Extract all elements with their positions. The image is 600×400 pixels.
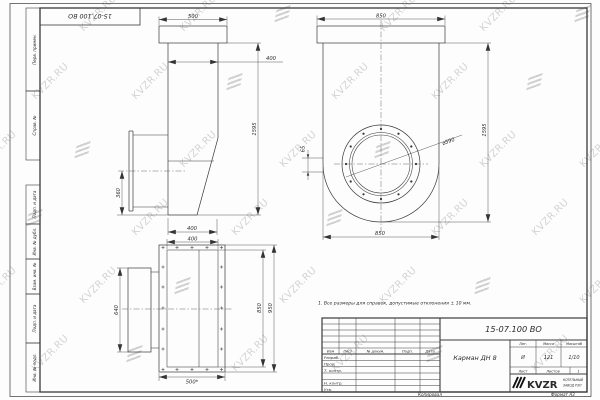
dim-outlet-height: 360 <box>116 187 122 198</box>
copied-label: Копировал <box>418 392 442 397</box>
row-prov: Пров. <box>324 361 335 366</box>
company-name-line1: КОТЕЛЬНЫЙ <box>563 377 584 382</box>
doc-number: 15-07.100 ВО <box>485 324 542 334</box>
flange-view <box>122 245 232 372</box>
corner-stamp-number: 15-07.100 ВО <box>68 12 112 19</box>
dim-outer-height: 950 <box>268 302 274 313</box>
row-nkontr: Н. контр. <box>324 381 343 386</box>
lit-label: Лит. <box>518 342 527 346</box>
col-izm: Изм <box>327 349 335 353</box>
row-tkontr: Т. контр. <box>324 368 342 373</box>
flange-view-dim-text: 400 500* 850 950 640 <box>114 237 274 386</box>
company-name-line2: ЗАВОД РЭП <box>563 384 582 388</box>
masshtab-label: Масштаб <box>566 342 582 346</box>
dim-flange-width: 850 <box>376 14 387 20</box>
company-logo: KVZR КОТЕЛЬНЫЙ ЗАВОД РЭП <box>513 377 584 391</box>
dim-offset: 65 <box>301 145 307 152</box>
side-view <box>118 26 227 215</box>
dim-flange-width: 500 <box>188 14 199 20</box>
col-podp: Подп. <box>402 349 413 353</box>
col-list: Лист <box>342 349 353 353</box>
dim-bottom-width: 400 <box>187 226 198 232</box>
dim-left-height: 640 <box>114 304 120 315</box>
side-view-dimensions <box>117 17 283 236</box>
format-label: Формат А3 <box>551 392 575 397</box>
massa-value: 121 <box>544 355 554 361</box>
drawing-note: 1. Все размеры для справок, допустимые о… <box>318 301 471 307</box>
col-docnum: № докум. <box>366 349 385 353</box>
sheets-label: Листов <box>545 369 559 373</box>
margin-label: Перв. примен. <box>32 34 37 65</box>
sheets-value: 1 <box>577 369 579 373</box>
col-data: Дата <box>424 349 434 353</box>
dim-diameter: ⌀590 <box>442 137 457 147</box>
margin-label: Подп. и дата <box>32 304 37 332</box>
engineering-drawing: Перв. примен. Справ. № Подп. и дата Инв.… <box>0 0 600 400</box>
lit-value: И <box>521 355 525 361</box>
masshtab-value: 1/10 <box>568 355 579 361</box>
dim-bottom-width: 500* <box>186 380 199 386</box>
drawing-sheet: KVZR.RUKVZR.RUKVZR.RUKVZR.RUKVZR.RUKVZR.… <box>0 0 600 400</box>
margin-label: Инв. № подл. <box>32 353 37 381</box>
massa-label: Масса <box>543 342 554 346</box>
margin-label: Инв. № дубл. <box>32 227 37 255</box>
margin-label: Справ. № <box>32 115 37 136</box>
dim-top-width: 400 <box>188 237 199 243</box>
row-razrab: Разраб. <box>324 355 339 360</box>
dim-inner-height: 850 <box>257 302 263 313</box>
margin-labels: Перв. примен. Справ. № Подп. и дата Инв.… <box>32 34 37 381</box>
dim-height: 1595 <box>482 123 488 137</box>
sheet-label: Лист <box>517 369 528 373</box>
front-view-dim-text: 850 65 ⌀590 1595 850 <box>301 14 489 238</box>
kvzr-logo-icon <box>513 377 525 388</box>
row-utv: Утв. <box>324 387 332 392</box>
front-view <box>317 20 445 232</box>
margin-label: Подп. и дата <box>32 190 37 218</box>
flange-view-dimensions <box>117 239 277 381</box>
dim-body-width: 400 <box>266 56 277 62</box>
logo-text: KVZR <box>527 380 558 391</box>
title-block-text: 15-07.100 ВО Карман ДН 8 Изм Лист № доку… <box>324 324 584 392</box>
dim-height: 1595 <box>252 122 258 136</box>
part-name: Карман ДН 8 <box>453 354 496 362</box>
bolt-hole-marks <box>161 246 223 371</box>
front-view-dimensions <box>302 16 491 241</box>
dim-bottom-width: 850 <box>375 231 386 237</box>
sheet-frame <box>10 4 591 397</box>
side-view-dim-text: 500 400 1595 360 400 <box>116 14 277 232</box>
margin-label: Взам. инв. № <box>32 262 37 291</box>
